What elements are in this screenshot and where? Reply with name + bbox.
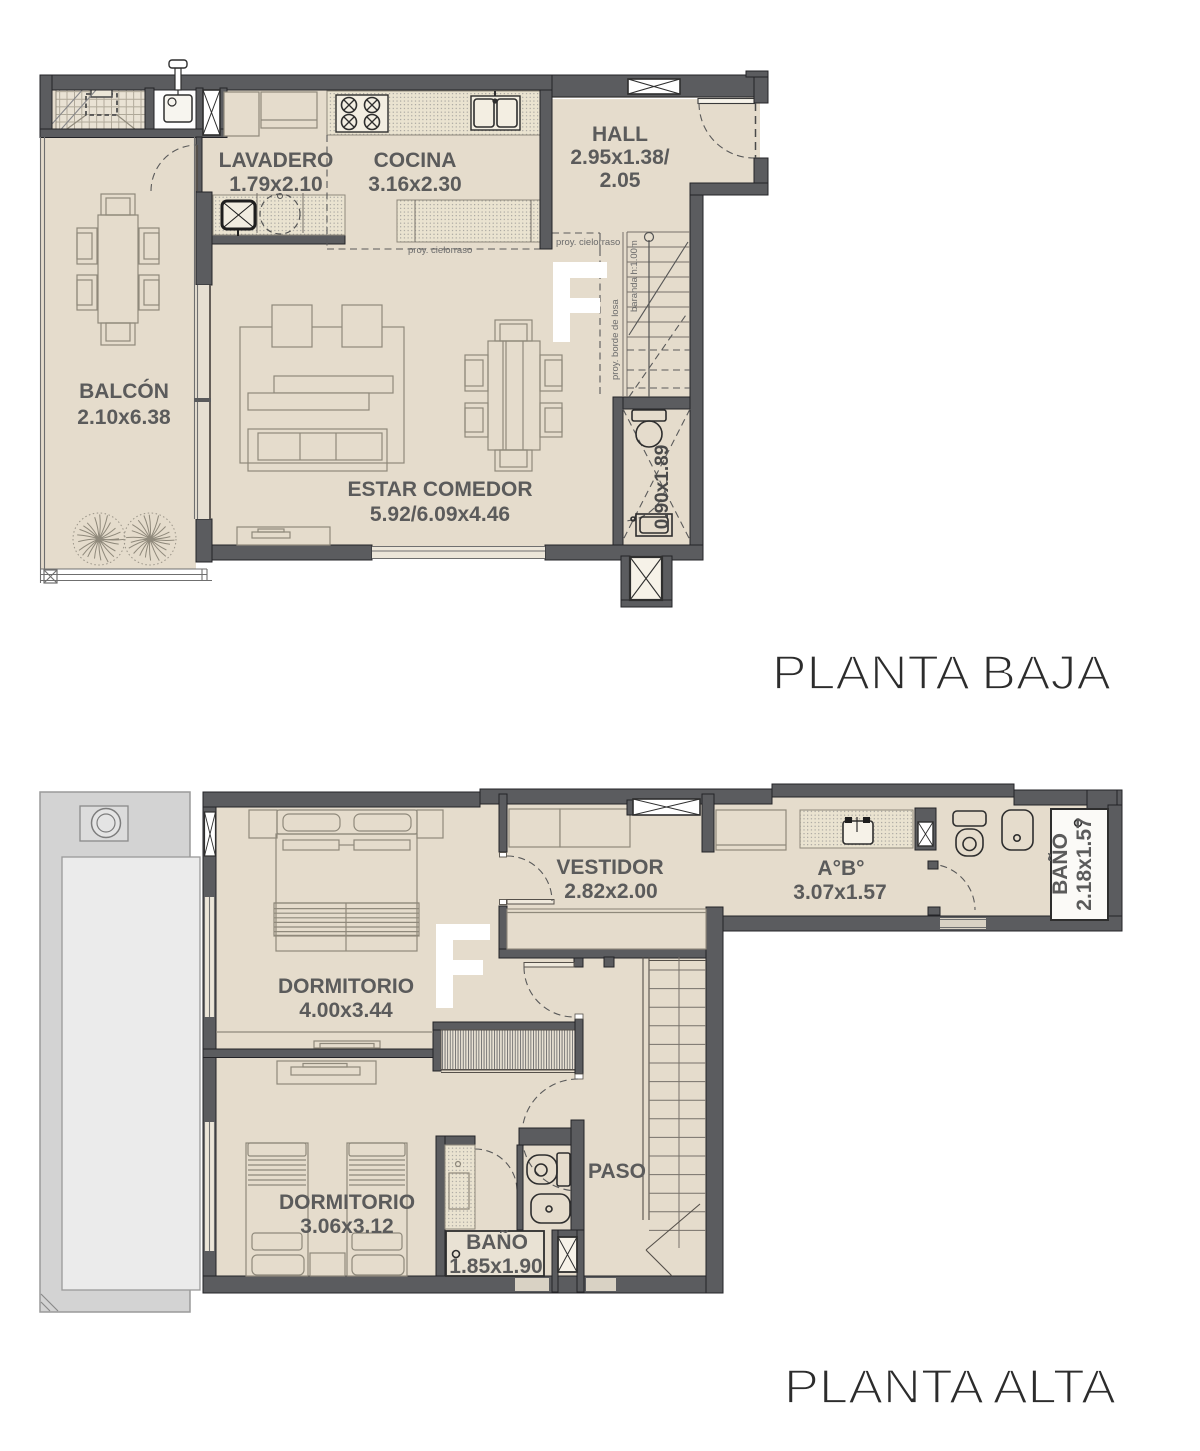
svg-text:DORMITORIO: DORMITORIO (278, 975, 414, 998)
svg-text:COCINA: COCINA (374, 149, 457, 172)
svg-text:0.90x1.89: 0.90x1.89 (652, 445, 673, 530)
svg-text:2.95x1.38/: 2.95x1.38/ (570, 146, 669, 169)
svg-text:ESTAR COMEDOR: ESTAR COMEDOR (347, 478, 532, 501)
svg-text:LAVADERO: LAVADERO (219, 149, 334, 172)
svg-text:5.92/6.09x4.46: 5.92/6.09x4.46 (370, 503, 510, 526)
svg-text:DORMITORIO: DORMITORIO (279, 1191, 415, 1214)
svg-text:2.82x2.00: 2.82x2.00 (564, 880, 657, 903)
svg-text:1.79x2.10: 1.79x2.10 (229, 173, 322, 196)
svg-text:proy. borde de losa: proy. borde de losa (610, 299, 621, 380)
svg-text:baranda h:1.00m: baranda h:1.00m (629, 240, 640, 312)
svg-text:PLANTA ALTA: PLANTA ALTA (784, 1361, 1116, 1414)
svg-text:PLANTA BAJA: PLANTA BAJA (772, 647, 1111, 700)
svg-text:HALL: HALL (592, 123, 648, 146)
svg-text:2.05: 2.05 (600, 169, 641, 192)
svg-text:2.18x1.57: 2.18x1.57 (1073, 817, 1096, 910)
svg-text:A°B°: A°B° (817, 857, 864, 880)
svg-text:proy. cielorraso: proy. cielorraso (556, 237, 620, 248)
svg-text:VESTIDOR: VESTIDOR (556, 856, 663, 879)
svg-text:3.16x2.30: 3.16x2.30 (368, 173, 461, 196)
svg-text:BAÑO: BAÑO (466, 1231, 528, 1254)
svg-text:BALCÓN: BALCÓN (79, 379, 169, 403)
svg-text:3.06x3.12: 3.06x3.12 (300, 1215, 393, 1238)
svg-text:BAÑO: BAÑO (1049, 833, 1072, 895)
svg-text:proy. cielorraso: proy. cielorraso (408, 245, 472, 256)
svg-text:2.10x6.38: 2.10x6.38 (77, 406, 171, 429)
svg-text:1.85x1.90: 1.85x1.90 (449, 1255, 542, 1278)
svg-text:PASO: PASO (588, 1160, 646, 1183)
svg-text:3.07x1.57: 3.07x1.57 (793, 881, 886, 904)
svg-text:4.00x3.44: 4.00x3.44 (299, 999, 393, 1022)
